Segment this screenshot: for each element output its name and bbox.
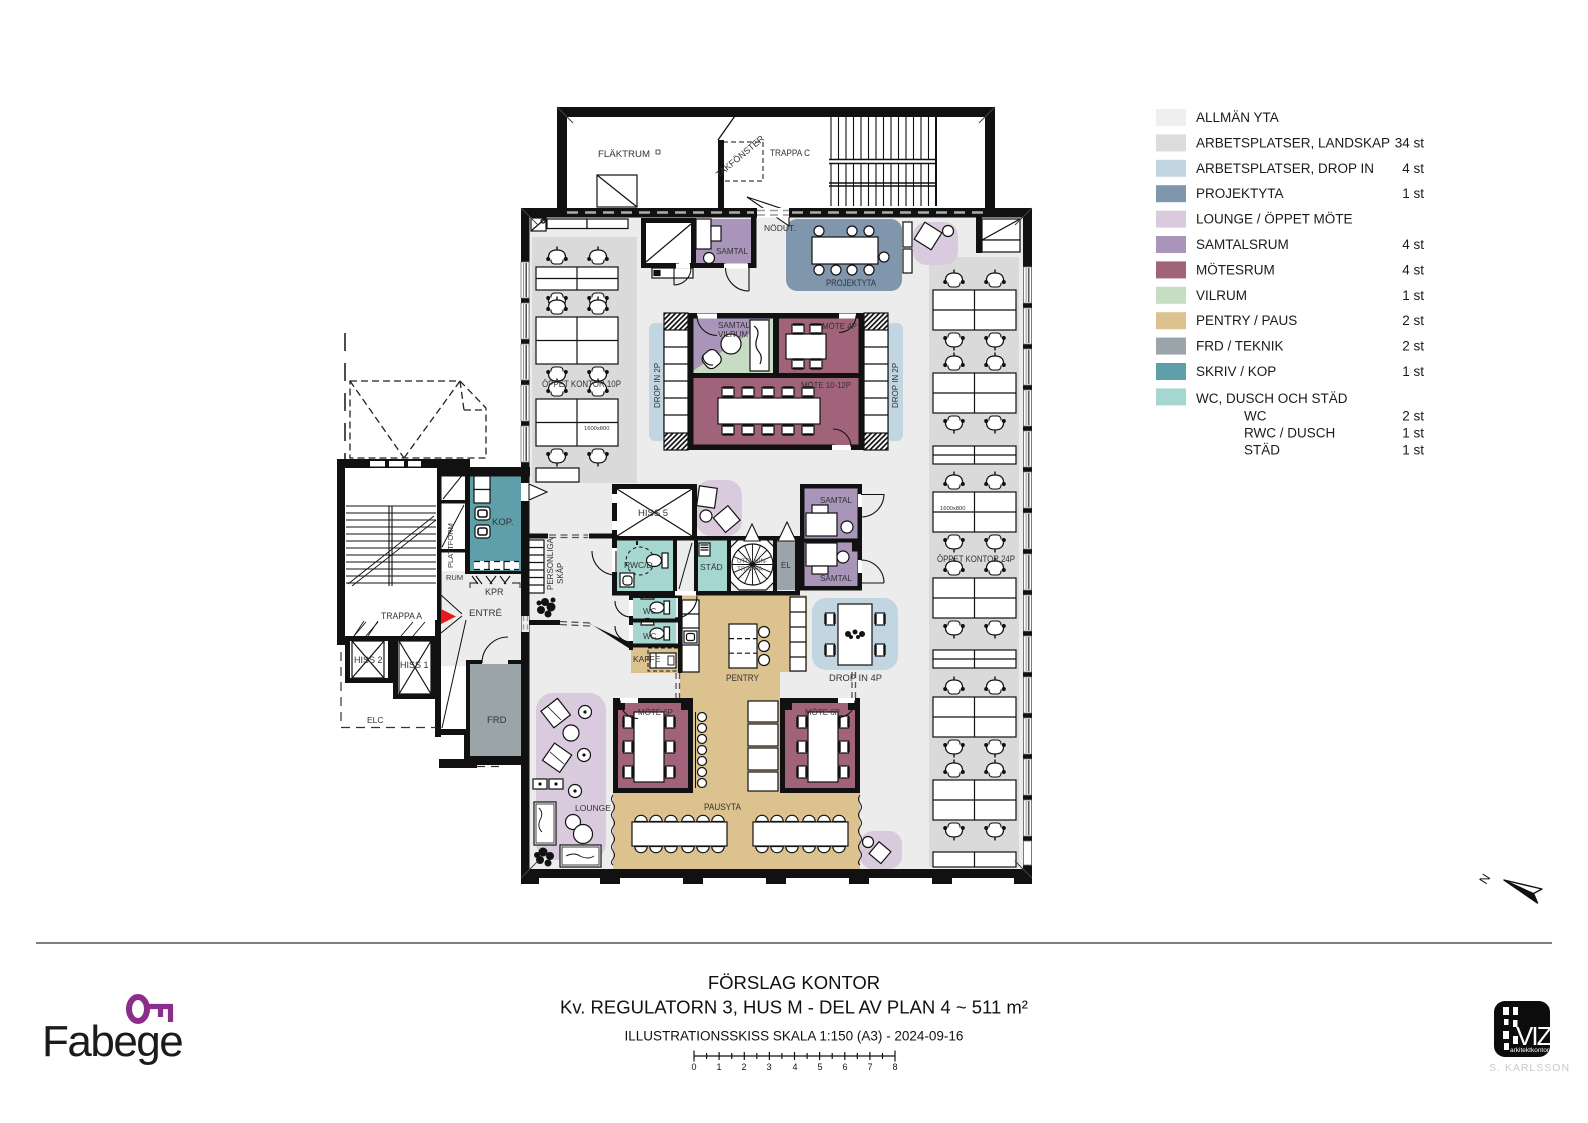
svg-text:ILLUSTRATIONSSKISS SKALA 1:150: ILLUSTRATIONSSKISS SKALA 1:150 (A3) - 20… (625, 1029, 964, 1044)
svg-text:PAUSYTA: PAUSYTA (704, 802, 742, 813)
svg-text:7: 7 (867, 1062, 872, 1072)
svg-text:LOUNGE: LOUNGE (575, 803, 611, 813)
svg-text:LOUNGE / ÖPPET MÖTE: LOUNGE / ÖPPET MÖTE (1196, 212, 1353, 227)
svg-text:RWC / DUSCH: RWC / DUSCH (1244, 426, 1335, 441)
svg-text:MÖTE 4P: MÖTE 4P (822, 321, 857, 331)
svg-text:1 st: 1 st (1402, 426, 1424, 441)
svg-text:5: 5 (817, 1062, 822, 1072)
svg-text:SAMTAL: SAMTAL (820, 573, 852, 583)
svg-text:FLÄKTRUM: FLÄKTRUM (598, 149, 650, 160)
svg-text:ALLMÄN YTA: ALLMÄN YTA (1196, 110, 1279, 125)
svg-text:2: 2 (741, 1062, 746, 1072)
svg-text:Kv. REGULATORN 3, HUS M - DEL: Kv. REGULATORN 3, HUS M - DEL AV PLAN 4 … (560, 997, 1028, 1018)
svg-text:1 st: 1 st (1402, 288, 1424, 303)
svg-text:SKRIV / KOP: SKRIV / KOP (1196, 364, 1276, 379)
svg-text:MÖTE 6P: MÖTE 6P (805, 707, 840, 717)
svg-text:EL: EL (781, 561, 791, 570)
svg-text:0: 0 (691, 1062, 696, 1072)
svg-text:STÄD: STÄD (700, 562, 723, 572)
svg-text:2 st: 2 st (1402, 339, 1424, 354)
svg-text:NÖDUT.: NÖDUT. (764, 223, 796, 233)
svg-text:DROP IN 2P: DROP IN 2P (653, 363, 662, 408)
svg-text:1600x800: 1600x800 (584, 426, 609, 432)
svg-text:3: 3 (766, 1062, 771, 1072)
svg-text:4 st: 4 st (1402, 161, 1424, 176)
svg-text:VILRUM: VILRUM (1196, 288, 1247, 303)
svg-text:TRAPPA C: TRAPPA C (770, 148, 810, 159)
svg-text:34 st: 34 st (1395, 135, 1425, 150)
svg-text:ARBETSPLATSER, LANDSKAP: ARBETSPLATSER, LANDSKAP (1196, 135, 1390, 150)
svg-text:DROP IN 2P: DROP IN 2P (891, 363, 900, 408)
svg-text:MÖTE 6P: MÖTE 6P (638, 707, 673, 717)
svg-text:FÖRSLAG KONTOR: FÖRSLAG KONTOR (708, 972, 880, 993)
svg-text:1: 1 (716, 1062, 721, 1072)
svg-text:STÄD: STÄD (1244, 443, 1280, 458)
svg-text:TRAPPA: TRAPPA (737, 566, 763, 573)
svg-text:VILRUM: VILRUM (718, 329, 748, 339)
svg-text:RUM: RUM (446, 573, 463, 582)
svg-text:HISS 1: HISS 1 (400, 660, 429, 670)
svg-text:Fabege: Fabege (42, 1017, 182, 1066)
svg-text:SAMTAL: SAMTAL (716, 246, 748, 256)
svg-text:MÖTESRUM: MÖTESRUM (1196, 262, 1275, 277)
svg-text:SKÅP: SKÅP (556, 563, 565, 584)
svg-text:ARBETSPLATSER, DROP IN: ARBETSPLATSER, DROP IN (1196, 161, 1374, 176)
svg-text:DROP IN 4P: DROP IN 4P (829, 673, 882, 684)
svg-text:FRD / TEKNIK: FRD / TEKNIK (1196, 339, 1284, 354)
svg-text:WC: WC (1244, 409, 1267, 424)
svg-text:PROJEKTYTA: PROJEKTYTA (826, 278, 877, 289)
svg-text:WC: WC (643, 607, 657, 616)
svg-text:S. KARLSSON: S. KARLSSON (1489, 1062, 1570, 1074)
svg-text:ÖPPET KONTOR 24P: ÖPPET KONTOR 24P (937, 554, 1015, 565)
svg-text:FRD: FRD (487, 715, 507, 726)
svg-text:6: 6 (842, 1062, 847, 1072)
svg-text:WC: WC (643, 632, 657, 641)
svg-text:SAMTAL: SAMTAL (820, 495, 852, 505)
svg-text:MÖTE 10-12P: MÖTE 10-12P (801, 380, 851, 390)
svg-text:PENTRY: PENTRY (726, 673, 760, 684)
svg-text:UTG. VIN-: UTG. VIN- (737, 558, 767, 565)
svg-text:2 st: 2 st (1402, 409, 1424, 424)
svg-text:4 st: 4 st (1402, 237, 1424, 252)
svg-text:KAFFE: KAFFE (633, 654, 661, 664)
svg-text:1 st: 1 st (1402, 443, 1424, 458)
svg-text:PROJEKTYTA: PROJEKTYTA (1196, 186, 1284, 201)
svg-text:4 st: 4 st (1402, 262, 1424, 277)
svg-text:KPR: KPR (485, 587, 504, 597)
svg-text:1 st: 1 st (1402, 364, 1424, 379)
svg-text:4: 4 (792, 1062, 797, 1072)
svg-text:PLATTFORM: PLATTFORM (446, 523, 455, 568)
svg-text:SAMTALSRUM: SAMTALSRUM (1196, 237, 1289, 252)
svg-text:WC, DUSCH OCH STÄD: WC, DUSCH OCH STÄD (1196, 391, 1348, 406)
svg-text:RWC/D: RWC/D (624, 560, 653, 570)
svg-text:ENTRÉ: ENTRÉ (469, 608, 502, 619)
svg-text:1 st: 1 st (1402, 186, 1424, 201)
svg-text:arkitektkontor: arkitektkontor (1510, 1047, 1550, 1054)
svg-text:KOP.: KOP. (492, 517, 513, 528)
svg-text:2 st: 2 st (1402, 313, 1424, 328)
svg-text:8: 8 (892, 1062, 897, 1072)
svg-text:HISS 5: HISS 5 (638, 508, 668, 519)
svg-text:HISS 2: HISS 2 (354, 655, 383, 665)
svg-text:ELC: ELC (367, 715, 384, 725)
svg-text:1600x800: 1600x800 (940, 506, 965, 512)
svg-text:PERSONLIGA: PERSONLIGA (546, 537, 555, 590)
svg-text:PENTRY / PAUS: PENTRY / PAUS (1196, 313, 1297, 328)
svg-text:ÖPPET KONTOR 10P: ÖPPET KONTOR 10P (542, 379, 621, 390)
svg-text:TRAPPA A: TRAPPA A (381, 611, 423, 622)
